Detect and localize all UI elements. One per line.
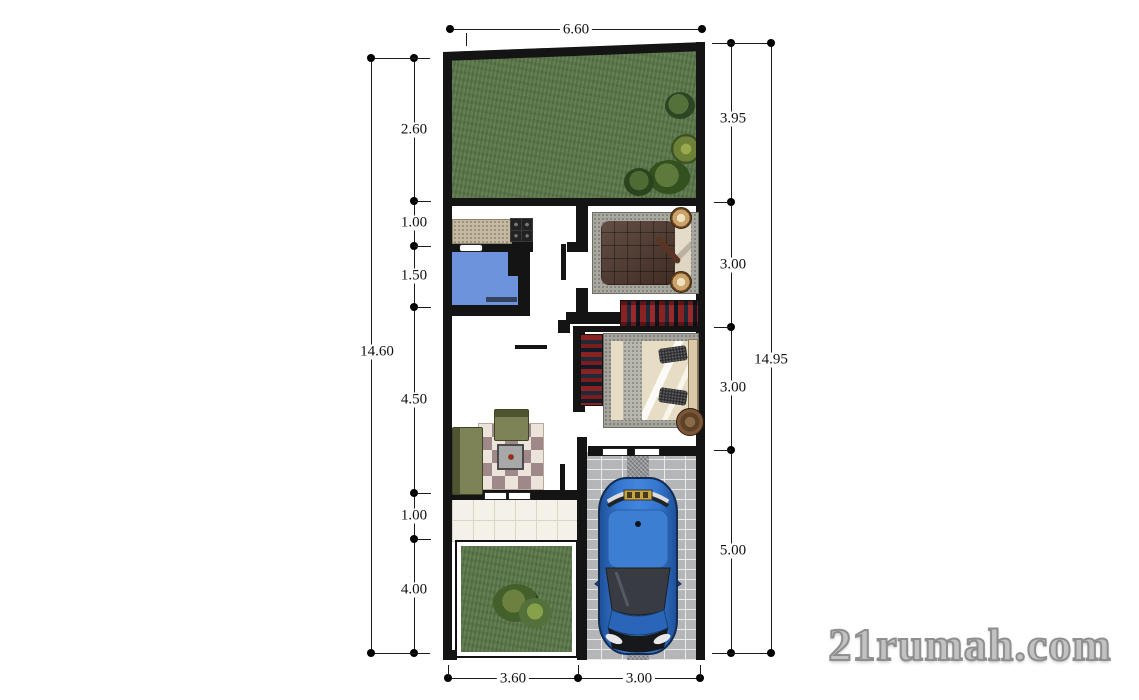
- window-icon: [634, 448, 660, 456]
- shrub-icon: [665, 92, 695, 119]
- dim-label: 3.00: [717, 258, 749, 273]
- dim-tick: [448, 665, 449, 678]
- bed-1-blanket: [601, 221, 675, 285]
- dim-dot: [367, 649, 375, 657]
- dim-tick: [414, 493, 431, 494]
- bathroom-bottom-wall: [443, 305, 530, 316]
- bed-1: [592, 212, 699, 294]
- stove-icon: [510, 218, 533, 242]
- front-garden-frame: [455, 540, 578, 658]
- door-leaf: [561, 244, 566, 280]
- window-icon: [508, 492, 531, 500]
- shrub-icon: [648, 160, 690, 194]
- dim-tick: [414, 307, 431, 308]
- kitchen-counter: [452, 219, 512, 244]
- left-wall: [443, 52, 452, 660]
- dim-label: 3.95: [717, 112, 749, 127]
- round-rug: [676, 408, 704, 436]
- dim-label: 4.00: [398, 583, 430, 598]
- dim-dot: [367, 54, 375, 62]
- dim-label-right-total: 14.95: [751, 353, 791, 368]
- bedpost-icon: [670, 271, 692, 293]
- dim-label: 1.00: [398, 216, 430, 231]
- dim-label: 5.00: [717, 544, 749, 559]
- door-stub: [567, 242, 588, 252]
- dim-tick: [714, 202, 731, 203]
- dim-tick: [578, 665, 579, 678]
- dim-label: 1.00: [398, 509, 430, 524]
- bedroom2-door-stub: [558, 320, 570, 333]
- dim-label: 1.50: [398, 269, 430, 284]
- bedpost-icon: [670, 207, 692, 229]
- top-wall: [443, 38, 705, 66]
- hall-rug: [620, 300, 699, 327]
- window-icon: [459, 244, 483, 252]
- dim-tick: [414, 539, 431, 540]
- dim-line-left: [414, 58, 415, 653]
- car-top-view: [594, 476, 682, 656]
- watermark: 21rumah.com: [812, 618, 1128, 671]
- burner: [522, 219, 532, 230]
- dim-connector: [371, 58, 430, 59]
- dim-connector: [712, 653, 771, 654]
- dim-label-top-width: 6.60: [560, 23, 592, 38]
- dim-label: 3.00: [717, 381, 749, 396]
- dim-dot: [767, 649, 775, 657]
- dim-dot: [767, 39, 775, 47]
- dim-label: 4.50: [398, 393, 430, 408]
- dim-label: 3.00: [623, 672, 655, 687]
- armchair: [494, 409, 529, 441]
- dim-line-right-total: [771, 43, 772, 653]
- bathroom-corner-stub: [508, 242, 519, 276]
- dim-tick: [714, 327, 731, 328]
- burner: [522, 231, 532, 242]
- front-garden: [461, 546, 572, 652]
- dim-label-left-total: 14.60: [357, 345, 397, 360]
- bed-2-blanket-fold: [623, 341, 642, 420]
- dim-line-right: [731, 43, 732, 653]
- back-garden: [452, 48, 696, 200]
- sofa: [452, 427, 483, 495]
- carport-left-wall: [577, 437, 587, 660]
- dim-label: 2.60: [398, 123, 430, 138]
- window-icon: [484, 492, 507, 500]
- bedroom1-left-wall-upper: [576, 206, 588, 242]
- dim-tick: [414, 246, 431, 247]
- wardrobe: [580, 334, 603, 406]
- window-icon: [602, 448, 628, 456]
- coffee-table: [497, 444, 524, 470]
- hall-bedroom1-wall: [566, 312, 622, 324]
- burner: [511, 219, 521, 230]
- dim-dot: [698, 25, 706, 33]
- flower-icon: [508, 454, 514, 460]
- floor-plan-canvas: 6.60 2.60 1.00 1.50 4.50 1.00 4.00 14.60…: [0, 0, 1139, 700]
- shrub-icon: [624, 168, 654, 196]
- dim-tick: [466, 33, 467, 46]
- dim-tick: [714, 450, 731, 451]
- door-leaf: [515, 345, 547, 349]
- terrace-floor: [452, 498, 578, 542]
- bush-icon: [519, 598, 551, 628]
- dim-dot: [446, 25, 454, 33]
- dim-tick: [700, 665, 701, 678]
- garden-bottom-wall: [452, 198, 696, 206]
- dim-tick: [414, 201, 431, 202]
- bath-mat: [486, 297, 517, 302]
- dim-label: 3.60: [497, 672, 529, 687]
- burner: [511, 231, 521, 242]
- dim-connector: [371, 653, 430, 654]
- dim-connector: [712, 43, 771, 44]
- bottom-left-corner-wall: [443, 650, 457, 660]
